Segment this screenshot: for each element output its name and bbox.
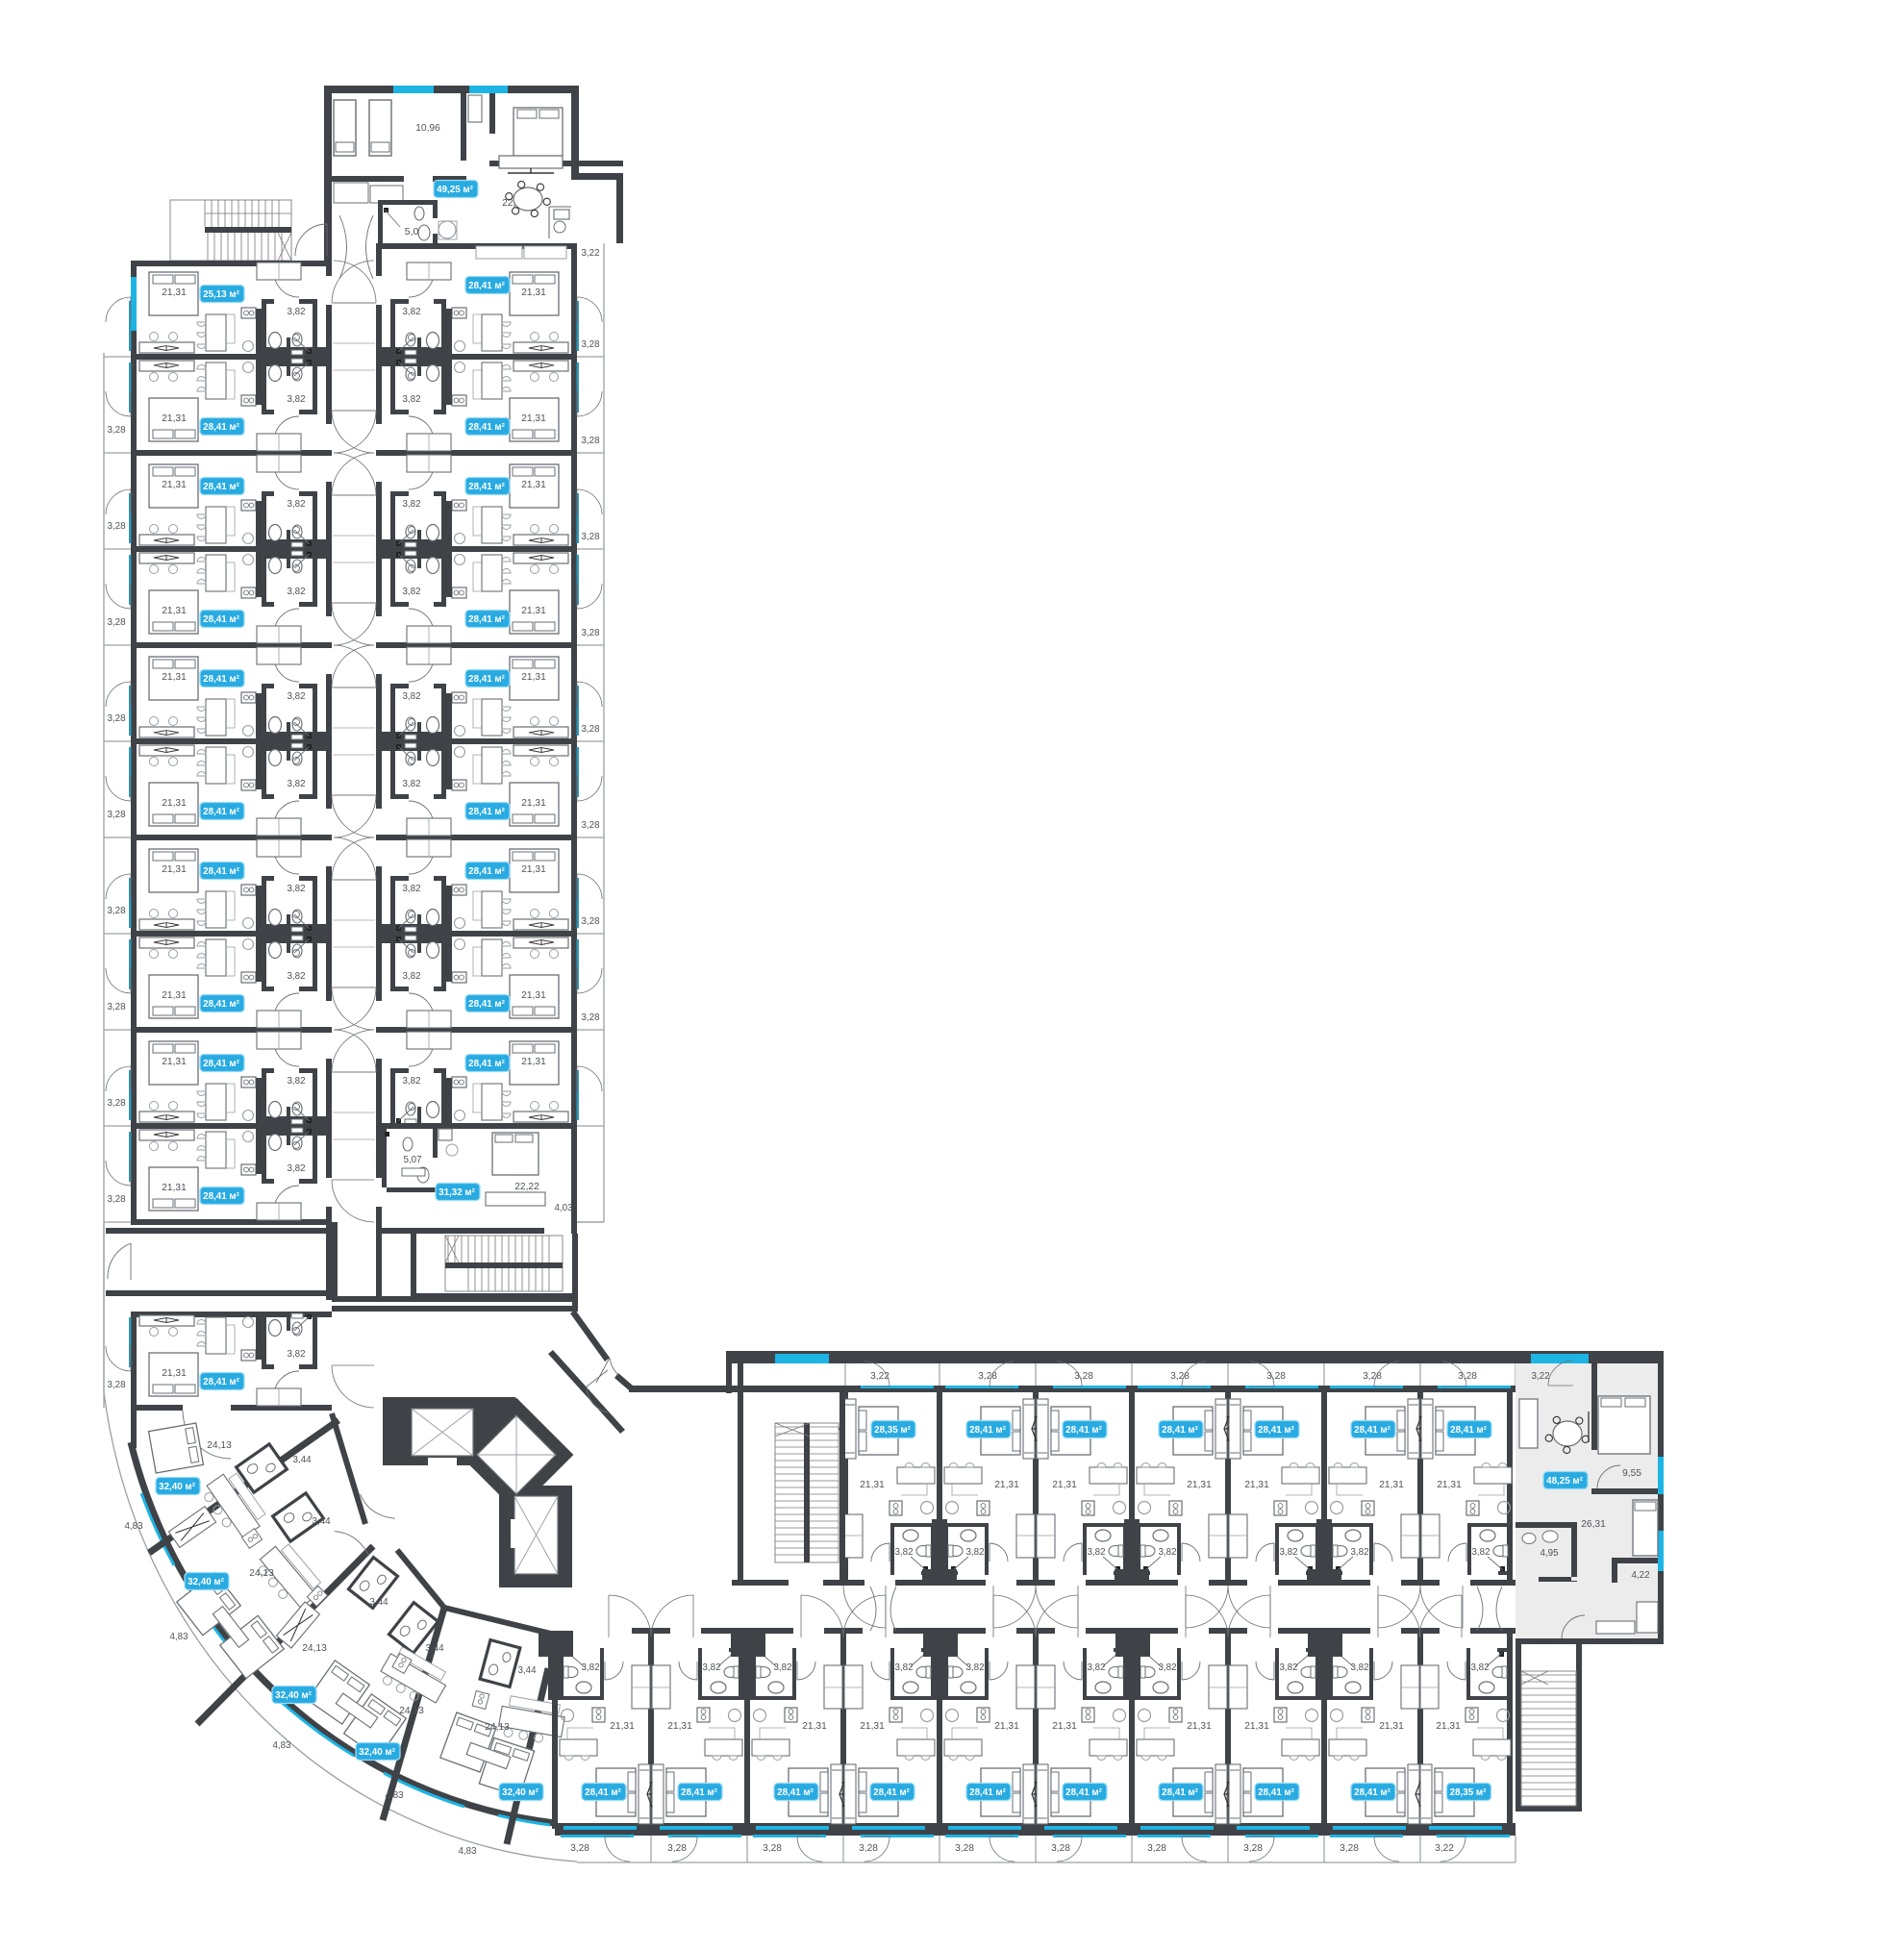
svg-text:3,82: 3,82 [1279, 1662, 1297, 1673]
svg-text:3,82: 3,82 [287, 1076, 305, 1087]
svg-text:3,28: 3,28 [107, 810, 126, 820]
svg-text:3,82: 3,82 [1470, 1662, 1489, 1673]
svg-text:3,28: 3,28 [955, 1843, 974, 1854]
svg-text:3,82: 3,82 [894, 1662, 913, 1673]
svg-text:28,41 м²: 28,41 м² [468, 422, 505, 433]
svg-text:3,82: 3,82 [965, 1662, 984, 1673]
svg-text:3,28: 3,28 [581, 628, 600, 638]
svg-text:3,82: 3,82 [702, 1662, 720, 1673]
svg-text:28,35 м²: 28,35 м² [1450, 1787, 1487, 1798]
svg-text:3,28: 3,28 [1458, 1371, 1477, 1382]
svg-text:28,41 м²: 28,41 м² [203, 614, 239, 625]
svg-text:28,41 м²: 28,41 м² [468, 614, 505, 625]
svg-text:28,41 м²: 28,41 м² [1354, 1787, 1390, 1798]
svg-text:28,41 м²: 28,41 м² [468, 1059, 505, 1069]
svg-text:3,28: 3,28 [1340, 1843, 1359, 1854]
svg-text:3,28: 3,28 [107, 521, 126, 532]
svg-text:28,41 м²: 28,41 м² [203, 1059, 239, 1069]
svg-text:21,31: 21,31 [1436, 1721, 1461, 1732]
svg-text:21,31: 21,31 [1379, 1721, 1404, 1732]
svg-text:21,31: 21,31 [1244, 1721, 1269, 1732]
svg-text:3,82: 3,82 [1087, 1662, 1105, 1673]
svg-text:21,31: 21,31 [860, 1480, 885, 1490]
svg-text:21,31: 21,31 [162, 1368, 187, 1379]
svg-text:3,28: 3,28 [581, 1012, 600, 1023]
svg-text:28,41 м²: 28,41 м² [468, 281, 505, 291]
svg-text:3,82: 3,82 [287, 971, 305, 982]
svg-text:3,44: 3,44 [369, 1597, 388, 1608]
svg-text:21,31: 21,31 [521, 606, 546, 616]
svg-text:3,28: 3,28 [1363, 1371, 1382, 1382]
svg-text:3,28: 3,28 [107, 1002, 126, 1012]
svg-text:21,31: 21,31 [667, 1721, 692, 1732]
svg-text:21,31: 21,31 [521, 480, 546, 490]
svg-text:3,82: 3,82 [287, 884, 305, 894]
svg-text:3,28: 3,28 [1243, 1843, 1263, 1854]
svg-text:49,25 м²: 49,25 м² [437, 185, 473, 195]
svg-text:28,41 м²: 28,41 м² [203, 1191, 239, 1202]
svg-text:3,44: 3,44 [312, 1516, 331, 1527]
svg-text:25,13 м²: 25,13 м² [203, 289, 239, 300]
svg-text:3,28: 3,28 [581, 724, 600, 735]
svg-text:28,35 м²: 28,35 м² [874, 1425, 911, 1436]
svg-text:28,41 м²: 28,41 м² [203, 422, 239, 433]
svg-text:21,31: 21,31 [1187, 1721, 1212, 1732]
svg-text:21,31: 21,31 [521, 864, 546, 875]
svg-text:21,31: 21,31 [521, 990, 546, 1001]
svg-text:28,41 м²: 28,41 м² [777, 1787, 814, 1798]
svg-text:21,31: 21,31 [162, 606, 187, 616]
svg-text:4,83: 4,83 [458, 1846, 477, 1857]
svg-text:3,28: 3,28 [581, 916, 600, 927]
svg-text:3,82: 3,82 [402, 307, 420, 317]
svg-text:4,83: 4,83 [169, 1632, 188, 1642]
svg-text:28,41 м²: 28,41 м² [1450, 1425, 1487, 1436]
svg-text:3,22: 3,22 [581, 248, 599, 259]
svg-text:28,41 м²: 28,41 м² [1258, 1787, 1294, 1798]
svg-text:21,31: 21,31 [162, 480, 187, 490]
svg-text:3,82: 3,82 [287, 1349, 305, 1360]
svg-text:28,41 м²: 28,41 м² [1065, 1425, 1102, 1436]
svg-text:26,31: 26,31 [1581, 1519, 1606, 1530]
svg-text:3,82: 3,82 [402, 971, 420, 982]
svg-text:3,82: 3,82 [287, 1163, 305, 1174]
svg-text:28,41 м²: 28,41 м² [203, 482, 239, 492]
svg-text:3,28: 3,28 [107, 1098, 126, 1109]
svg-text:28,41 м²: 28,41 м² [468, 999, 505, 1010]
svg-text:3,82: 3,82 [287, 307, 305, 317]
svg-text:21,31: 21,31 [162, 798, 187, 809]
svg-text:3,44: 3,44 [292, 1455, 312, 1465]
svg-text:4,03: 4,03 [554, 1203, 573, 1213]
svg-text:31,32 м²: 31,32 м² [438, 1187, 475, 1198]
svg-text:3,44: 3,44 [517, 1665, 537, 1676]
svg-text:28,41 м²: 28,41 м² [203, 1377, 239, 1387]
svg-text:21,31: 21,31 [162, 672, 187, 683]
svg-text:3,44: 3,44 [425, 1643, 444, 1654]
svg-text:3,28: 3,28 [667, 1843, 687, 1854]
svg-text:3,28: 3,28 [107, 906, 126, 916]
svg-text:3,82: 3,82 [402, 884, 420, 894]
svg-text:21,31: 21,31 [994, 1721, 1019, 1732]
svg-text:3,82: 3,82 [773, 1662, 791, 1673]
svg-text:3,22: 3,22 [1435, 1843, 1454, 1854]
svg-text:28,41 м²: 28,41 м² [468, 807, 505, 817]
svg-text:22,22: 22,22 [514, 1182, 539, 1192]
svg-text:21,31: 21,31 [162, 287, 187, 298]
svg-text:32,40 м²: 32,40 м² [188, 1577, 224, 1587]
svg-text:3,82: 3,82 [581, 1662, 599, 1673]
svg-text:3,28: 3,28 [581, 436, 600, 446]
svg-text:28,41 м²: 28,41 м² [1162, 1425, 1198, 1436]
svg-text:3,22: 3,22 [870, 1371, 889, 1382]
svg-text:32,40 м²: 32,40 м² [159, 1482, 195, 1492]
svg-text:4,83: 4,83 [272, 1740, 291, 1751]
svg-text:3,28: 3,28 [570, 1843, 589, 1854]
svg-text:3,28: 3,28 [1266, 1371, 1286, 1382]
svg-text:24,13: 24,13 [207, 1440, 232, 1451]
svg-text:3,28: 3,28 [107, 425, 126, 436]
svg-text:3,82: 3,82 [1158, 1662, 1176, 1673]
svg-text:21,31: 21,31 [162, 413, 187, 424]
svg-text:28,41 м²: 28,41 м² [1065, 1787, 1102, 1798]
svg-text:3,82: 3,82 [287, 587, 305, 597]
svg-text:28,41 м²: 28,41 м² [203, 674, 239, 685]
svg-text:28,41 м²: 28,41 м² [468, 866, 505, 877]
svg-text:28,41 м²: 28,41 м² [203, 807, 239, 817]
svg-text:3,82: 3,82 [1350, 1662, 1368, 1673]
svg-text:21,31: 21,31 [521, 287, 546, 298]
svg-text:3,28: 3,28 [107, 1380, 126, 1390]
svg-text:3,28: 3,28 [581, 532, 600, 542]
svg-text:4,83: 4,83 [124, 1521, 143, 1532]
svg-text:28,41 м²: 28,41 м² [681, 1787, 717, 1798]
svg-text:21,31: 21,31 [521, 1057, 546, 1067]
svg-text:3,82: 3,82 [402, 587, 420, 597]
svg-text:3,82: 3,82 [287, 779, 305, 789]
svg-text:10,96: 10,96 [415, 123, 440, 134]
svg-text:4,83: 4,83 [385, 1790, 404, 1801]
svg-text:3,28: 3,28 [978, 1371, 997, 1382]
svg-text:3,28: 3,28 [1074, 1371, 1093, 1382]
svg-text:32,40 м²: 32,40 м² [359, 1747, 395, 1758]
svg-text:3,82: 3,82 [1279, 1547, 1297, 1558]
svg-text:3,82: 3,82 [402, 499, 420, 510]
svg-text:3,82: 3,82 [402, 394, 420, 405]
svg-text:32,40 м²: 32,40 м² [502, 1787, 539, 1798]
svg-text:21,31: 21,31 [1379, 1480, 1404, 1490]
svg-text:28,41 м²: 28,41 м² [1258, 1425, 1294, 1436]
svg-text:3,28: 3,28 [107, 1194, 126, 1205]
svg-text:21,31: 21,31 [162, 1183, 187, 1193]
svg-text:21,31: 21,31 [1187, 1480, 1212, 1490]
svg-text:3,82: 3,82 [402, 779, 420, 789]
svg-text:3,82: 3,82 [1350, 1547, 1368, 1558]
svg-text:3,82: 3,82 [1087, 1547, 1105, 1558]
svg-text:3,28: 3,28 [763, 1843, 782, 1854]
svg-text:3,82: 3,82 [1158, 1547, 1176, 1558]
svg-text:28,41 м²: 28,41 м² [468, 674, 505, 685]
svg-text:3,28: 3,28 [581, 339, 600, 350]
svg-text:21,31: 21,31 [521, 798, 546, 809]
svg-text:5,07: 5,07 [403, 1155, 421, 1165]
svg-text:3,82: 3,82 [287, 691, 305, 702]
svg-text:3,28: 3,28 [107, 617, 126, 628]
svg-text:3,82: 3,82 [402, 1076, 420, 1087]
svg-text:4,22: 4,22 [1631, 1570, 1649, 1581]
svg-text:21,31: 21,31 [521, 413, 546, 424]
svg-text:21,31: 21,31 [162, 1057, 187, 1067]
svg-text:3,28: 3,28 [1051, 1843, 1070, 1854]
svg-text:48,25 м²: 48,25 м² [1546, 1476, 1583, 1487]
svg-text:24,13: 24,13 [485, 1722, 510, 1733]
svg-text:28,41 м²: 28,41 м² [873, 1787, 910, 1798]
svg-text:3,28: 3,28 [859, 1843, 878, 1854]
svg-text:32,40 м²: 32,40 м² [275, 1690, 312, 1701]
svg-text:21,31: 21,31 [521, 672, 546, 683]
svg-text:24,13: 24,13 [302, 1643, 327, 1654]
svg-text:21,31: 21,31 [1244, 1480, 1269, 1490]
svg-text:28,41 м²: 28,41 м² [969, 1425, 1006, 1436]
svg-text:3,82: 3,82 [287, 499, 305, 510]
svg-text:21,31: 21,31 [610, 1721, 635, 1732]
svg-text:28,41 м²: 28,41 м² [1354, 1425, 1390, 1436]
svg-text:9,55: 9,55 [1622, 1468, 1641, 1479]
svg-text:3,82: 3,82 [1471, 1547, 1490, 1558]
svg-text:3,82: 3,82 [894, 1547, 913, 1558]
svg-text:28,41 м²: 28,41 м² [585, 1787, 621, 1798]
svg-text:3,28: 3,28 [107, 713, 126, 724]
svg-text:3,28: 3,28 [581, 820, 600, 831]
svg-text:28,41 м²: 28,41 м² [969, 1787, 1006, 1798]
svg-text:28,41 м²: 28,41 м² [203, 866, 239, 877]
svg-text:3,82: 3,82 [287, 394, 305, 405]
svg-text:28,41 м²: 28,41 м² [1162, 1787, 1198, 1798]
svg-text:21,31: 21,31 [162, 864, 187, 875]
svg-text:3,28: 3,28 [1147, 1843, 1166, 1854]
svg-text:21,31: 21,31 [1437, 1480, 1462, 1490]
svg-text:21,31: 21,31 [1052, 1721, 1077, 1732]
svg-text:28,41 м²: 28,41 м² [203, 999, 239, 1010]
svg-text:24,13: 24,13 [249, 1568, 274, 1579]
svg-text:3,28: 3,28 [1170, 1371, 1190, 1382]
svg-text:3,82: 3,82 [965, 1547, 984, 1558]
svg-text:3,22: 3,22 [1531, 1371, 1549, 1382]
svg-text:4,95: 4,95 [1540, 1548, 1559, 1559]
svg-text:21,31: 21,31 [162, 990, 187, 1001]
svg-text:28,41 м²: 28,41 м² [468, 482, 505, 492]
svg-text:21,31: 21,31 [802, 1721, 827, 1732]
svg-text:3,82: 3,82 [402, 691, 420, 702]
svg-text:24,13: 24,13 [399, 1706, 424, 1716]
svg-text:21,31: 21,31 [860, 1721, 885, 1732]
svg-text:21,31: 21,31 [994, 1480, 1019, 1490]
svg-text:21,31: 21,31 [1052, 1480, 1077, 1490]
